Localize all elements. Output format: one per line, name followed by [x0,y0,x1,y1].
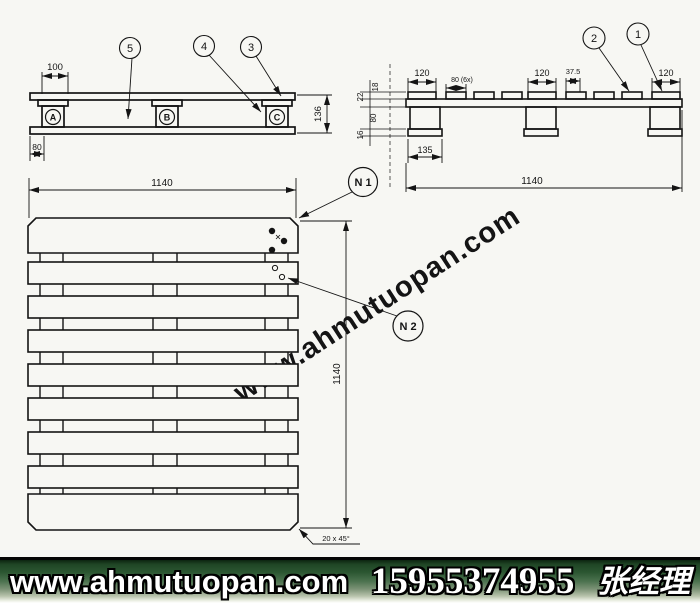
deck-end-wide-2 [528,92,556,99]
plan-bottom-board [28,494,298,530]
banner-website: www.ahmutuopan.com [10,559,348,603]
right-elevation-view [406,92,682,136]
plan-view-dim-1140-height [300,221,352,528]
plan-board [28,262,298,284]
deck-end-wide-3 [652,92,680,99]
side-stringer-board [406,99,682,107]
callout-n2-label: N 2 [399,321,416,333]
dim-1140-width-label: 1140 [151,178,173,189]
plan-board [28,296,298,318]
block-left [410,107,440,129]
banner-contact-name: 张经理 [597,559,690,603]
dim-80-label: 80 [32,142,42,152]
chamfer-note-label: 20 x 45° [322,534,350,543]
cap-plate-a [38,100,68,106]
dim-135-label: 135 [417,145,432,155]
dim-37-5-label: 37.5 [566,67,581,76]
ad-banner: www.ahmutuopan.com 15955374955 张经理 [0,557,700,603]
technical-drawing: www.ahmutuopan.com A B C [0,0,700,557]
deck-end-small [446,92,466,99]
bottom-plate-right [648,129,682,136]
banner-phone: 15955374955 [371,559,575,603]
deck-end-small [502,92,522,99]
dim-22-label: 22 [356,92,365,101]
left-view-dim-100 [42,72,68,94]
top-deck-board [30,93,295,100]
bottom-plate-center [524,129,558,136]
right-view-side-dims [360,80,406,146]
block-label-a: A [50,113,57,123]
pallet-drawing-page: www.ahmutuopan.com A B C [0,0,700,603]
plan-board [28,330,298,352]
callout-1-label: 1 [635,29,641,41]
plan-top-board [28,218,298,253]
dim-18-label: 18 [371,82,380,91]
dim-1140-height-label: 1140 [332,363,343,385]
cap-plate-b [152,100,182,106]
dim-16-label: 16 [356,130,365,139]
plan-board [28,364,298,386]
block-label-c: C [274,113,281,123]
right-view-top-dims [390,64,680,190]
block-label-b: B [164,113,171,123]
dim-80-block-label: 80 [369,113,378,122]
plan-view [28,218,298,530]
plan-board [28,432,298,454]
callout-5-label: 5 [127,43,133,55]
deck-end-small [474,92,494,99]
dim-80-6x-label: 80 (6x) [451,77,473,84]
deck-end-wide-1 [408,92,436,99]
dim-120-left-label: 120 [414,68,429,78]
deck-end-small [566,92,586,99]
block-right [650,107,680,129]
deck-end-small [622,92,642,99]
plan-board [28,466,298,488]
deck-end-small [594,92,614,99]
callout-2-label: 2 [591,33,597,45]
callout-3-label: 3 [248,42,254,54]
bottom-deck-board [30,127,295,134]
bottom-plate-left [408,129,442,136]
dim-120-right-label: 120 [658,68,673,78]
right-view-bottom-dims [406,110,682,192]
dim-100-label: 100 [47,62,63,73]
left-elevation-view [30,93,295,134]
cap-plate-c [262,100,292,106]
dim-120-mid-label: 120 [534,68,549,78]
plan-board [28,398,298,420]
block-center [526,107,556,129]
dim-136-label: 136 [313,106,324,122]
callout-n1-label: N 1 [354,177,371,189]
dim-1140-right-view-label: 1140 [521,176,543,187]
callout-4-label: 4 [201,41,207,53]
